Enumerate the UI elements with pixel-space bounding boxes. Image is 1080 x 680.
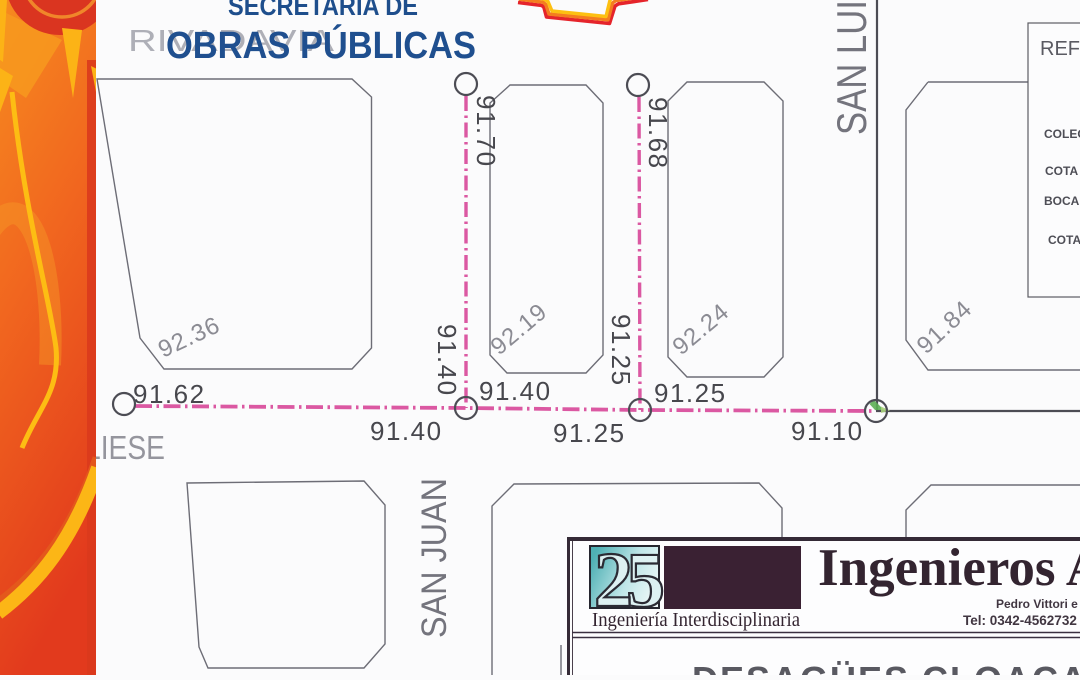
svg-text:91.70: 91.70 [471,95,501,168]
svg-text:91.62: 91.62 [133,379,206,409]
svg-text:BOCA DE: BOCA DE [1044,194,1080,208]
svg-text:Pedro Vittori e H: Pedro Vittori e H [996,597,1080,611]
svg-text:OBRAS PÚBLICAS: OBRAS PÚBLICAS [166,23,476,67]
svg-text:COLECTOR: COLECTOR [1044,127,1080,141]
svg-text:DESAGÜES CLOACALES: DESAGÜES CLOACALES [692,659,1080,675]
svg-text:91.25: 91.25 [606,314,636,387]
svg-text:91.25: 91.25 [553,418,626,448]
svg-text:91.40: 91.40 [370,416,443,446]
svg-text:91.25: 91.25 [654,378,727,408]
svg-text:SECRETARÍA DE: SECRETARÍA DE [228,0,418,21]
svg-text:91.68: 91.68 [643,97,673,170]
svg-text:SAN LUIS: SAN LUIS [828,0,875,135]
svg-text:COTA DE: COTA DE [1048,233,1080,247]
svg-text:91.40: 91.40 [432,324,462,397]
svg-text:COTA IN: COTA IN [1045,164,1080,178]
svg-text:REFER: REFER [1040,38,1080,60]
svg-text:Tel: 0342-4562732: Tel: 0342-4562732 [963,613,1077,628]
svg-text:91.40: 91.40 [479,376,552,406]
svg-text:Ingenieros A: Ingenieros A [818,539,1080,597]
svg-text:SAN JUAN: SAN JUAN [415,478,454,638]
svg-text:Ingeniería Interdisciplinaria: Ingeniería Interdisciplinaria [592,609,800,631]
svg-text:LIESE: LIESE [85,429,165,466]
svg-text:91.10: 91.10 [791,416,864,446]
